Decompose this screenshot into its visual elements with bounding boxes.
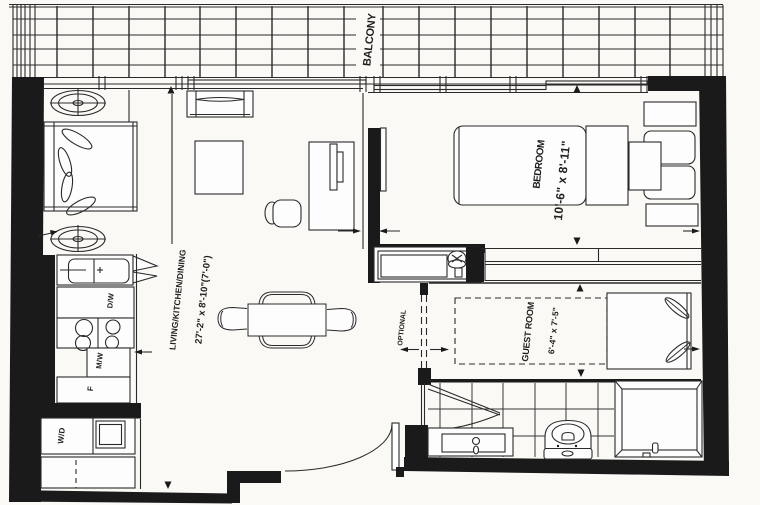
svg-text:D/W: D/W [105,292,116,309]
svg-text:M/W: M/W [94,351,105,369]
svg-text:W/D: W/D [56,427,67,444]
